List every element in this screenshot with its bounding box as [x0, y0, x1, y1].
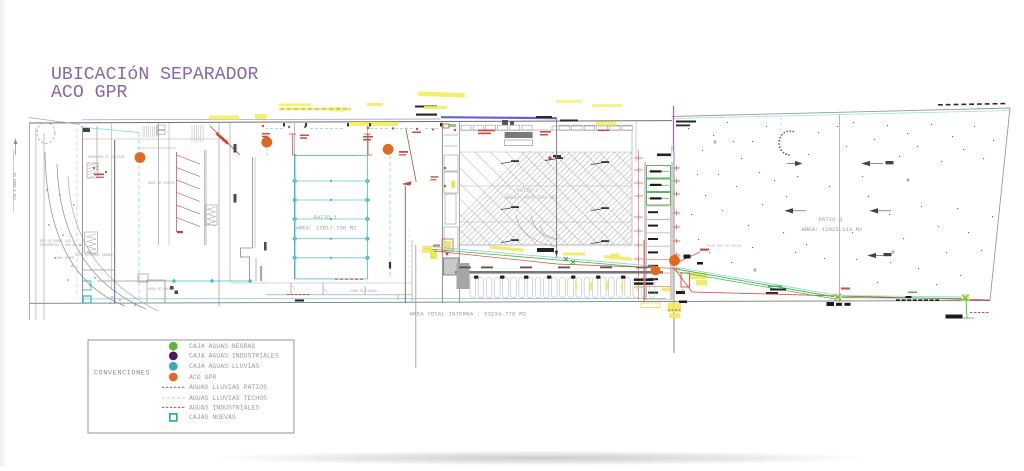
svg-text:ACO GPR: ACO GPR	[189, 374, 216, 381]
svg-text:CONVENCIONES: CONVENCIONES	[94, 370, 150, 378]
svg-text:AGUAS LLUVIAS TECHOS: AGUAS LLUVIAS TECHOS	[189, 395, 267, 402]
svg-text:VIA 9 AREA SA: VIA 9 AREA SA	[14, 172, 18, 200]
svg-text:MANGUERA DE SUCCION: MANGUERA DE SUCCION	[88, 155, 124, 159]
svg-text:PATIO 1.: PATIO 1.	[314, 214, 341, 221]
svg-text:AGUAS LLUVIAS PATIOS: AGUAS LLUVIAS PATIOS	[189, 384, 267, 391]
svg-text:ZONA DE LAVADO: ZONA DE LAVADO	[350, 289, 377, 293]
svg-text:ACO GPR: ACO GPR	[51, 83, 127, 103]
svg-text:PATIO 3: PATIO 3	[819, 216, 843, 223]
svg-text:CAJA AGUAS INDUSTRIALES: CAJA AGUAS INDUSTRIALES	[189, 353, 279, 360]
svg-text:AREA: 12917.730 M2: AREA: 12917.730 M2	[296, 225, 357, 232]
svg-text:PATIO 2: PATIO 2	[517, 188, 538, 194]
svg-text:CAJA AGUAS NEGRAS: CAJA AGUAS NEGRAS	[189, 343, 255, 350]
svg-text:AREA DE CENTRO: AREA DE CENTRO	[148, 181, 175, 185]
svg-text:TOMA VERDE: TOMA VERDE	[55, 256, 74, 260]
svg-text:PAVIMENTOS - HGA RD SA: PAVIMENTOS - HGA RD SA	[40, 243, 82, 247]
svg-text:UBICACIóN SEPARADOR: UBICACIóN SEPARADOR	[51, 65, 258, 85]
svg-text:CAJA AGUAS LLUVIAS: CAJA AGUAS LLUVIAS	[189, 363, 259, 370]
svg-text:CAJAS NUEVAS: CAJAS NUEVAS	[189, 414, 236, 421]
svg-text:SOTA INTERNAL GRANDE: SOTA INTERNAL GRANDE	[75, 253, 113, 257]
svg-text:POZO RED DE AGUAS: POZO RED DE AGUAS	[707, 245, 742, 249]
svg-text:AGUAS INDUSTRIALES: AGUAS INDUSTRIALES	[189, 404, 259, 411]
svg-text:AREA: 4065.930 M2: AREA: 4065.930 M2	[505, 195, 556, 201]
svg-text:AREA: 12023.113 M2: AREA: 12023.113 M2	[802, 226, 863, 233]
svg-text:AREA TOTAL INTERNA : 33234.776: AREA TOTAL INTERNA : 33234.776 M2	[410, 310, 527, 317]
